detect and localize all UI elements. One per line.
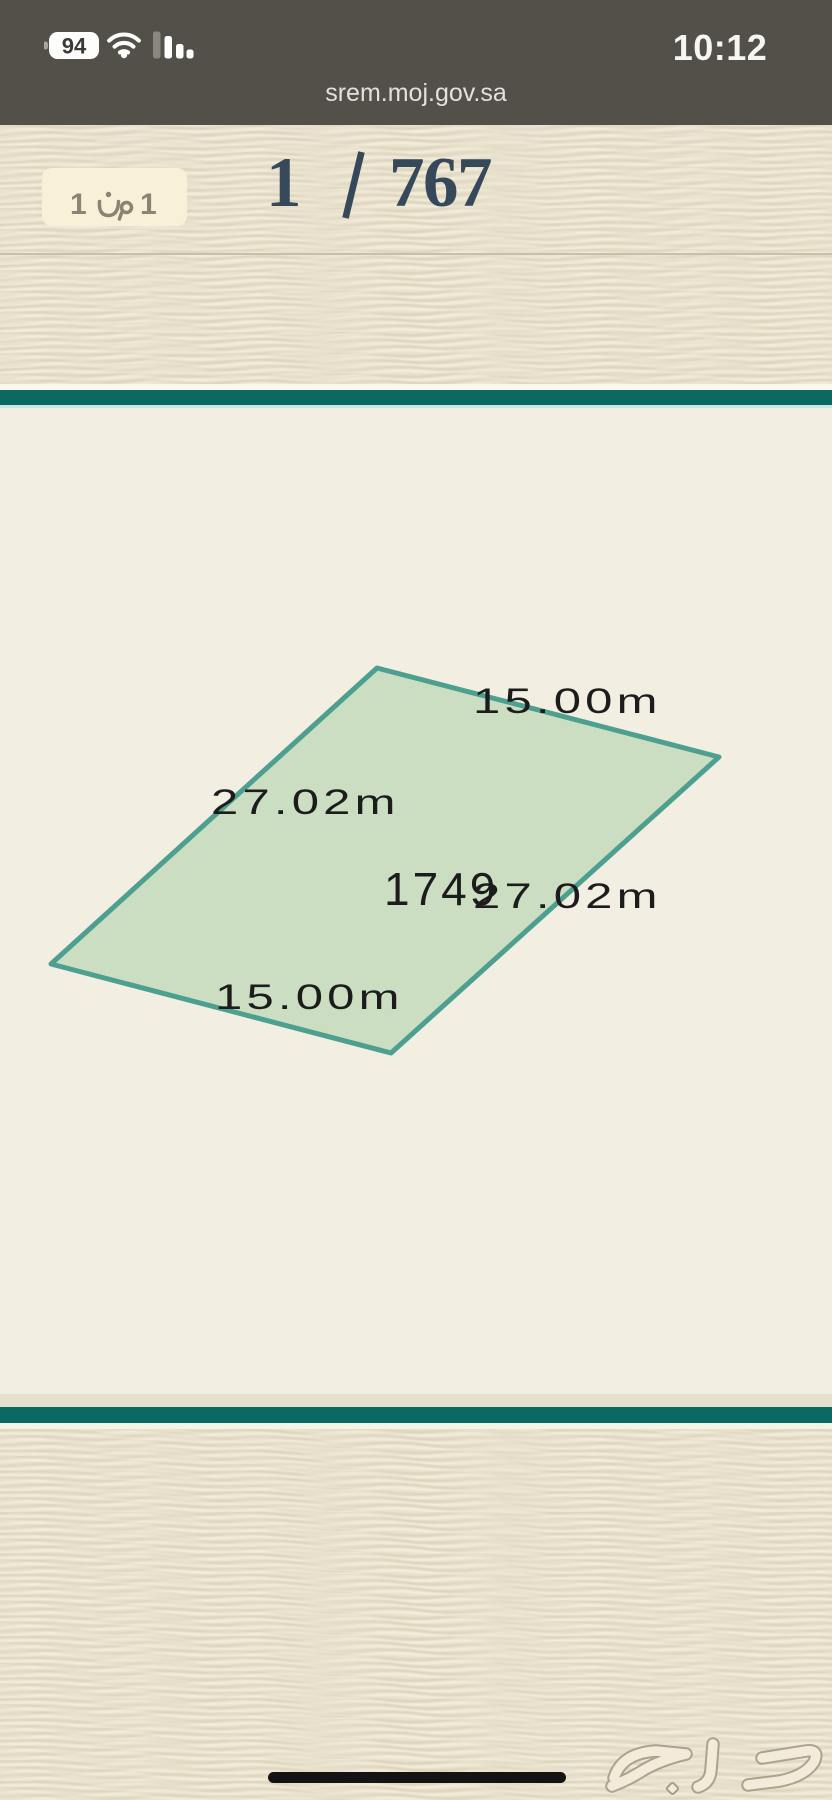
svg-text:94: 94 (62, 34, 87, 59)
svg-text:1: 1 (140, 188, 157, 221)
svg-text:1: 1 (70, 188, 87, 221)
